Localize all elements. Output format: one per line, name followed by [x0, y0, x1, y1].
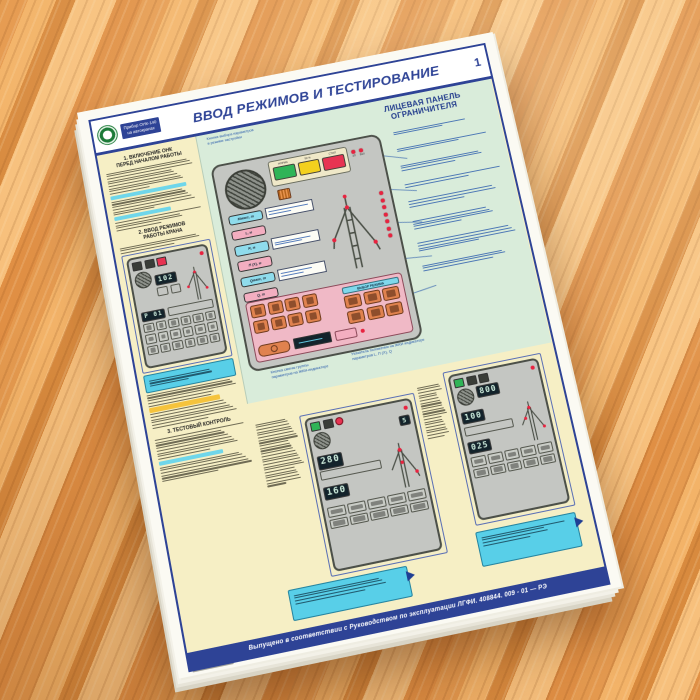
panel-button: [539, 453, 556, 465]
panel-button: [284, 296, 301, 311]
tag-mmax: Mмакс, т: [228, 210, 264, 227]
led-display: 800: [475, 381, 501, 398]
dark-key: [132, 261, 143, 271]
panel-button: [389, 504, 409, 517]
red-led: [379, 191, 384, 196]
dark-key: [478, 373, 490, 383]
scale-box: [170, 283, 182, 294]
red-led: [403, 406, 408, 411]
led-display: 025: [467, 438, 493, 455]
parameter-tags: Mмакс, т L, м R, м П (X), м Qмакс, т Q, …: [228, 199, 330, 304]
panel-button: [343, 293, 362, 309]
scale-box: [156, 286, 168, 297]
greeked-text-line: [423, 251, 506, 269]
panel-button: [196, 335, 208, 346]
photo-scene: Прибор ОНК-140 на автокранах ВВОД РЕЖИМО…: [0, 0, 700, 700]
poster-pad: Прибор ОНК-140 на автокранах ВВОД РЕЖИМО…: [77, 32, 622, 679]
speaker-grille-icon: [222, 166, 270, 213]
panel-button: [537, 441, 554, 453]
lamp-90: 90 %: [296, 155, 322, 179]
panel-button: [369, 508, 389, 521]
brand-logo-icon: [96, 123, 120, 146]
instrument-card-1: 102 P 01: [121, 239, 233, 374]
panel-button: [159, 342, 171, 353]
greeked-text-line: [401, 152, 482, 169]
greeked-text-line: [408, 185, 492, 203]
panel-button: [409, 499, 429, 512]
page-number: 1: [470, 55, 485, 70]
greeked-text-line: [149, 371, 212, 385]
tag-px: П (X), м: [237, 256, 273, 273]
panel-button: [209, 332, 221, 343]
panel-button: [157, 331, 169, 342]
panel-button: [304, 308, 321, 323]
panel-button: [381, 286, 400, 302]
greeked-text-line: [295, 589, 365, 605]
led-vkl: ВКЛ: [359, 148, 365, 156]
panel-button: [192, 313, 204, 324]
panel-button: [301, 293, 318, 308]
panel-button: [489, 463, 506, 476]
panel-button: [143, 322, 155, 333]
wide-button: [257, 339, 291, 357]
poster-main: ЛИЦЕВАЯ ПАНЕЛЬ ОГРАНИЧИТЕЛЯ Кнопки выбор…: [97, 79, 605, 653]
led-display: 160: [323, 482, 351, 501]
small-orange-button: [277, 188, 292, 201]
pink-tag: [334, 327, 358, 341]
greeked-text-line: [294, 580, 382, 599]
tag-qmax: Qмакс, т: [240, 271, 276, 288]
red-led: [385, 219, 390, 224]
panel-button: [155, 320, 167, 331]
instrument-card-3: 800 100 025: [442, 353, 575, 526]
red-led: [199, 251, 204, 256]
crane-schematic: [179, 259, 212, 302]
panel-button: [329, 516, 349, 529]
front-panel-zone: ЛИЦЕВАЯ ПАНЕЛЬ ОГРАНИЧИТЕЛЯ Кнопки выбор…: [195, 79, 551, 404]
green-key: [310, 421, 322, 431]
panel-button: [172, 340, 184, 351]
dark-key: [322, 419, 334, 429]
panel-button: [346, 308, 365, 324]
alarm-led-column: [379, 191, 393, 238]
crane-schematic: [511, 392, 551, 445]
panel-button: [147, 345, 159, 356]
panel-button: [206, 321, 218, 332]
led-display: 5: [398, 414, 411, 427]
led-zp: ЗП: [351, 150, 356, 158]
panel-button: [366, 304, 385, 320]
poster-sheet: Прибор ОНК-140 на автокранах ВВОД РЕЖИМО…: [77, 32, 622, 679]
panel-button: [252, 318, 269, 334]
panel-button: [387, 492, 407, 505]
red-key: [156, 256, 167, 266]
lamp-stop: СТОП: [321, 150, 347, 174]
panel-button: [327, 504, 347, 517]
dark-key: [465, 375, 477, 385]
red-led: [382, 205, 387, 210]
panel-button: [470, 455, 487, 467]
greeked-text-line: [409, 187, 496, 205]
panel-button: [287, 311, 304, 327]
greeked-text-line: [483, 529, 548, 543]
speaker-grille-icon: [312, 430, 332, 450]
red-button: [335, 417, 345, 427]
greeked-text-line: [393, 118, 465, 133]
dark-key: [144, 259, 155, 269]
red-led: [388, 233, 393, 238]
panel-button: [169, 329, 181, 340]
panel-button: [347, 500, 367, 513]
panel-button: [145, 334, 157, 345]
panel-button: [194, 324, 206, 335]
panel-button: [506, 459, 523, 472]
greeked-text-line: [397, 131, 486, 149]
red-led: [386, 226, 391, 231]
red-led: [530, 366, 535, 371]
panel-button: [267, 300, 284, 315]
panel-button: [362, 289, 381, 305]
card-3-panel: 800 100 025: [447, 357, 571, 521]
side-leds: ЗП ВКЛ: [351, 148, 365, 158]
brand-label: Прибор ОНК-140 на автокранах: [120, 117, 161, 138]
panel-button: [523, 456, 540, 468]
panel-button: [182, 326, 194, 337]
greeked-text-line: [405, 175, 468, 188]
panel-button: [270, 315, 287, 331]
speaker-grille-icon: [133, 270, 153, 290]
speaker-grille-icon: [455, 387, 475, 407]
panel-button: [180, 315, 192, 326]
crane-schematic: [379, 432, 424, 493]
red-led: [383, 212, 388, 217]
greeked-text-line: [418, 227, 512, 247]
red-lamp: [322, 154, 347, 171]
green-lamp: [272, 164, 297, 181]
panel-button: [504, 448, 521, 460]
indicator-plate: НОРМА 90 % СТОП: [267, 146, 351, 187]
limiter-front-panel: НОРМА 90 % СТОП: [210, 133, 424, 372]
keypad-buttons: [250, 293, 322, 334]
red-led: [360, 328, 365, 333]
greeked-text-line: [481, 520, 564, 538]
panel-button: [473, 466, 490, 479]
panel-button: [204, 310, 216, 321]
panel-button: [349, 512, 369, 525]
card-1-panel: 102 P 01: [126, 243, 228, 369]
panel-button: [407, 488, 427, 501]
panel-button: [367, 496, 387, 509]
card-2-panel: 5 280 160: [304, 397, 443, 572]
panel-button: [385, 300, 404, 316]
panel-button: [487, 451, 504, 463]
panel-button: [184, 337, 196, 348]
panel-button: [250, 303, 267, 318]
panel-button: [520, 445, 537, 457]
yellow-lamp: [297, 159, 322, 176]
tag-r: R, м: [234, 240, 270, 257]
tag-l: L, м: [231, 225, 267, 242]
red-led: [380, 198, 385, 203]
body-text-column: [255, 415, 308, 489]
greeked-text-line: [397, 139, 459, 152]
green-key: [453, 378, 465, 388]
poster-frame: Прибор ОНК-140 на автокранах ВВОД РЕЖИМО…: [88, 43, 610, 672]
callout-list: [393, 111, 525, 273]
lamp-norma: НОРМА: [272, 160, 298, 184]
panel-button: [167, 317, 179, 328]
